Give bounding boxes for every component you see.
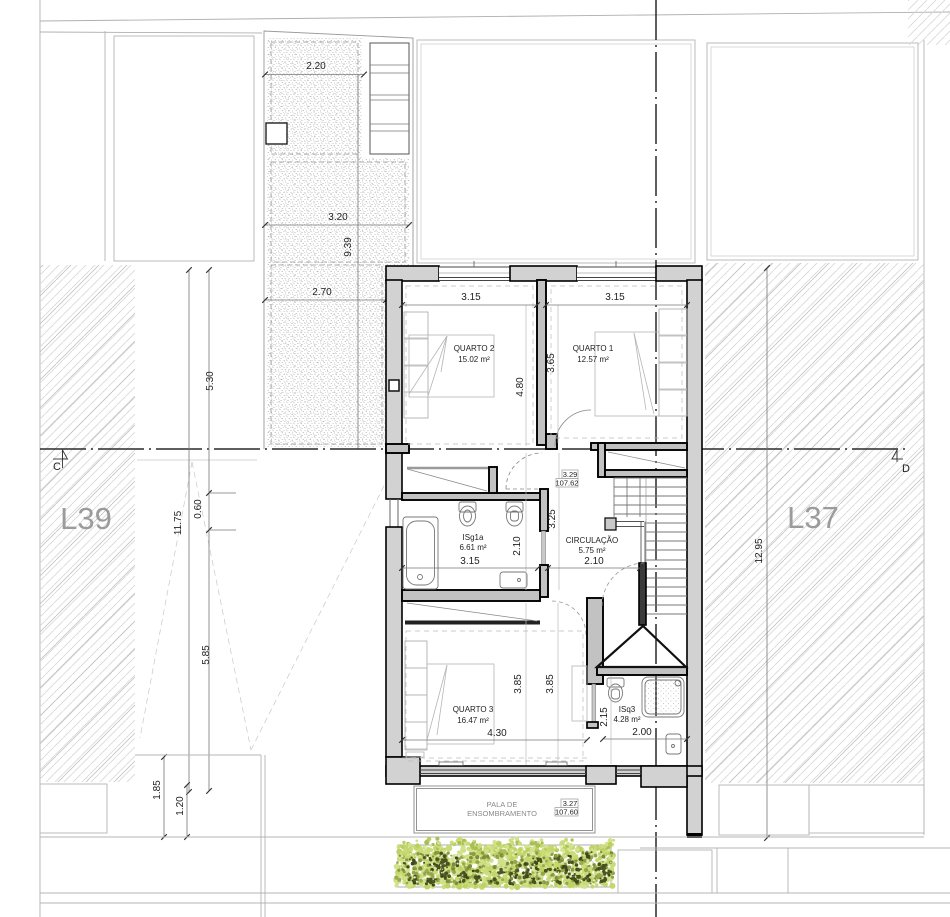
svg-text:3.85: 3.85 (513, 674, 524, 694)
svg-text:2.00: 2.00 (632, 727, 652, 738)
svg-text:4.28 m²: 4.28 m² (613, 715, 640, 724)
svg-text:9.39: 9.39 (343, 237, 354, 257)
svg-text:L37: L37 (787, 500, 839, 535)
svg-text:ENSOMBRAMENTO: ENSOMBRAMENTO (467, 809, 537, 818)
svg-text:2.70: 2.70 (312, 287, 332, 298)
svg-text:5.30: 5.30 (205, 371, 216, 391)
svg-text:6.61 m²: 6.61 m² (459, 543, 486, 552)
svg-text:2.15: 2.15 (599, 707, 610, 727)
svg-text:ISg1a: ISg1a (463, 533, 484, 542)
svg-text:2.10: 2.10 (584, 556, 604, 567)
svg-text:3.85: 3.85 (545, 674, 556, 694)
svg-text:3.25: 3.25 (547, 509, 558, 529)
svg-text:3.15: 3.15 (605, 292, 625, 303)
svg-text:5.85: 5.85 (201, 645, 212, 665)
svg-text:5.75 m²: 5.75 m² (578, 546, 605, 555)
svg-text:4.80: 4.80 (515, 377, 526, 397)
svg-text:0.60: 0.60 (193, 499, 204, 519)
svg-text:3.15: 3.15 (461, 292, 481, 303)
svg-text:3.20: 3.20 (328, 212, 348, 223)
svg-text:11.75: 11.75 (173, 510, 184, 535)
svg-text:12.57 m²: 12.57 m² (577, 355, 609, 364)
svg-text:3.15: 3.15 (460, 556, 480, 567)
svg-text:2.20: 2.20 (306, 61, 326, 72)
svg-text:15.02 m²: 15.02 m² (458, 355, 490, 364)
svg-text:2.10: 2.10 (512, 536, 523, 556)
svg-text:QUARTO 3: QUARTO 3 (453, 705, 494, 714)
svg-text:PALA DE: PALA DE (487, 800, 518, 809)
svg-text:107.62: 107.62 (556, 479, 579, 488)
svg-text:L39: L39 (60, 501, 112, 536)
svg-text:C: C (53, 461, 61, 473)
svg-text:QUARTO 2: QUARTO 2 (454, 344, 495, 353)
svg-text:ISq3: ISq3 (619, 705, 636, 714)
svg-text:CIRCULAÇÃO: CIRCULAÇÃO (566, 536, 618, 545)
svg-text:3.65: 3.65 (546, 353, 557, 373)
svg-text:4.30: 4.30 (487, 728, 507, 739)
svg-text:QUARTO 1: QUARTO 1 (573, 344, 614, 353)
svg-text:107.60: 107.60 (555, 808, 578, 817)
svg-text:D: D (902, 463, 910, 475)
svg-text:1.20: 1.20 (175, 796, 186, 816)
svg-text:16.47 m²: 16.47 m² (457, 716, 489, 725)
svg-text:12.95: 12.95 (754, 538, 765, 563)
svg-text:1.85: 1.85 (152, 780, 163, 800)
